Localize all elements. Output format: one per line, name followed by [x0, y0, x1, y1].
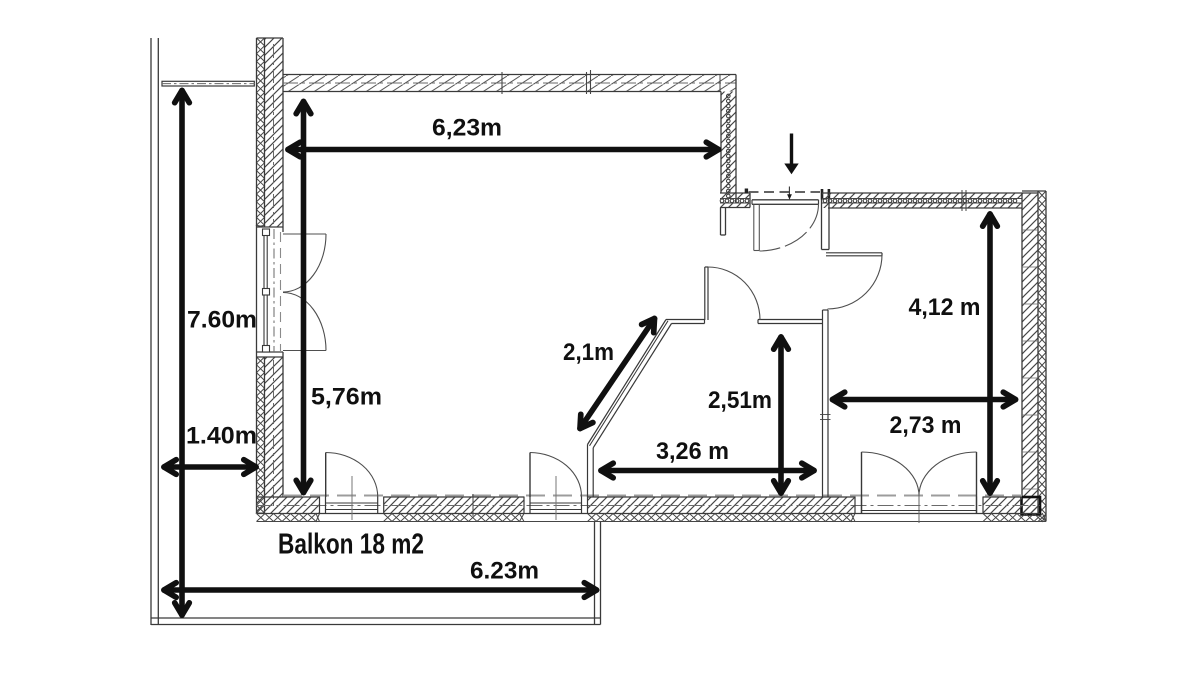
svg-text:2,51m: 2,51m — [708, 387, 772, 414]
svg-text:2,1m: 2,1m — [563, 339, 614, 366]
svg-text:Balkon 18 m2: Balkon 18 m2 — [278, 529, 424, 561]
svg-text:5,76m: 5,76m — [311, 384, 382, 411]
svg-text:1.40m: 1.40m — [186, 423, 257, 450]
svg-text:6.23m: 6.23m — [470, 558, 539, 585]
svg-text:3,26 m: 3,26 m — [656, 438, 729, 465]
svg-text:6,23m: 6,23m — [432, 115, 502, 142]
svg-text:7.60m: 7.60m — [187, 307, 257, 334]
svg-text:4,12 m: 4,12 m — [909, 294, 981, 321]
svg-text:2,73 m: 2,73 m — [890, 412, 962, 439]
